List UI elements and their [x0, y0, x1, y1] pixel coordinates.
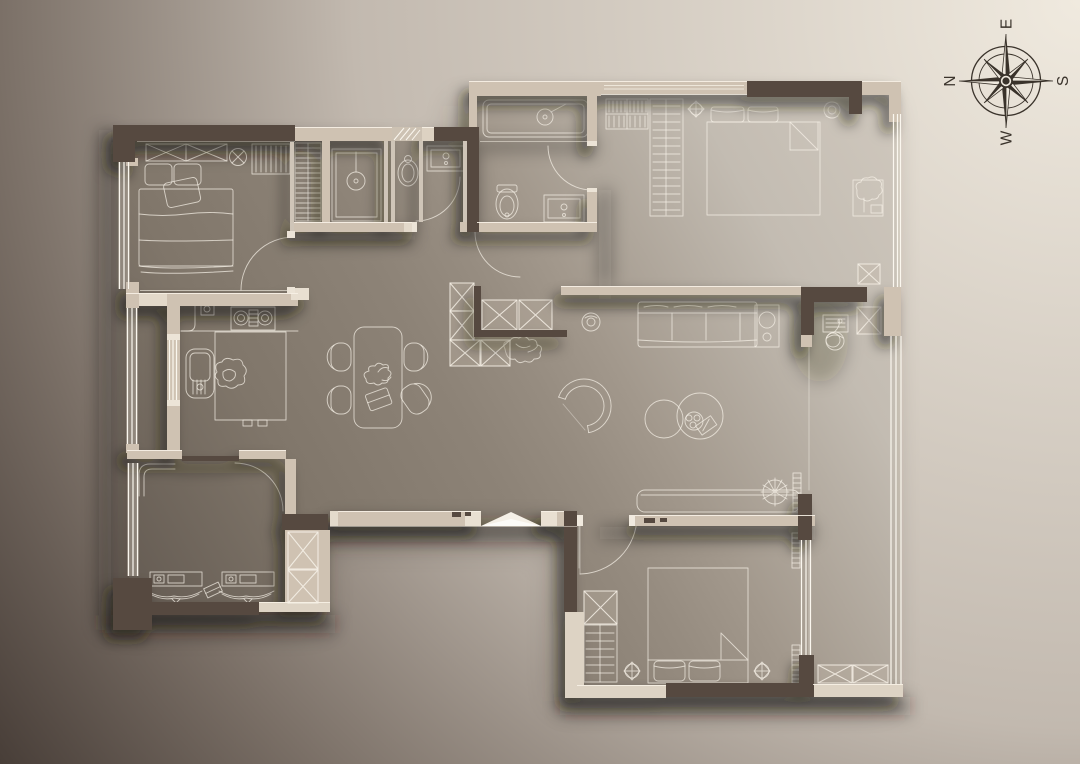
- svg-text:N: N: [942, 75, 959, 86]
- svg-text:W: W: [999, 130, 1016, 145]
- svg-text:S: S: [1055, 76, 1072, 86]
- svg-text:E: E: [999, 19, 1016, 29]
